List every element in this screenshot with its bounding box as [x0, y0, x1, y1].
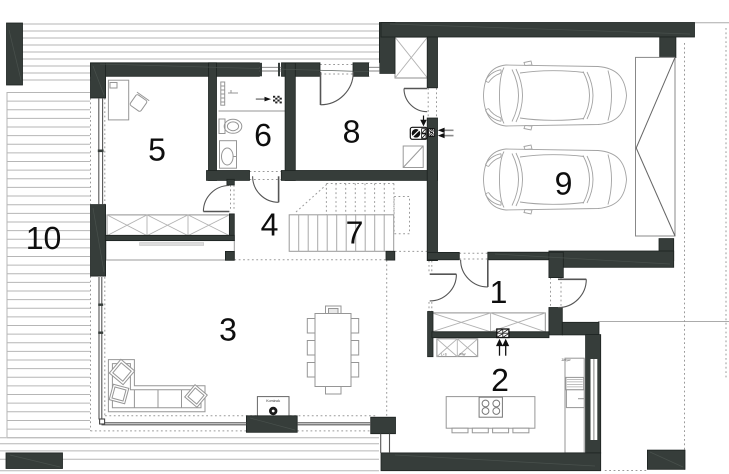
svg-text:10: 10: [26, 220, 62, 256]
svg-text:5: 5: [148, 132, 166, 168]
svg-text:1: 1: [490, 274, 508, 310]
svg-text:4: 4: [261, 207, 279, 243]
svg-text:8: 8: [343, 114, 361, 150]
svg-text:7: 7: [346, 215, 364, 251]
svg-text:PIW: PIW: [460, 352, 466, 356]
svg-text:Zmyw: Zmyw: [561, 358, 571, 362]
svg-text:6: 6: [254, 117, 272, 153]
svg-text:Kominek: Kominek: [266, 399, 280, 403]
svg-text:2: 2: [491, 362, 509, 398]
svg-text:L+S: L+S: [441, 352, 447, 356]
svg-text:3: 3: [219, 312, 237, 348]
svg-text:9: 9: [555, 166, 573, 202]
